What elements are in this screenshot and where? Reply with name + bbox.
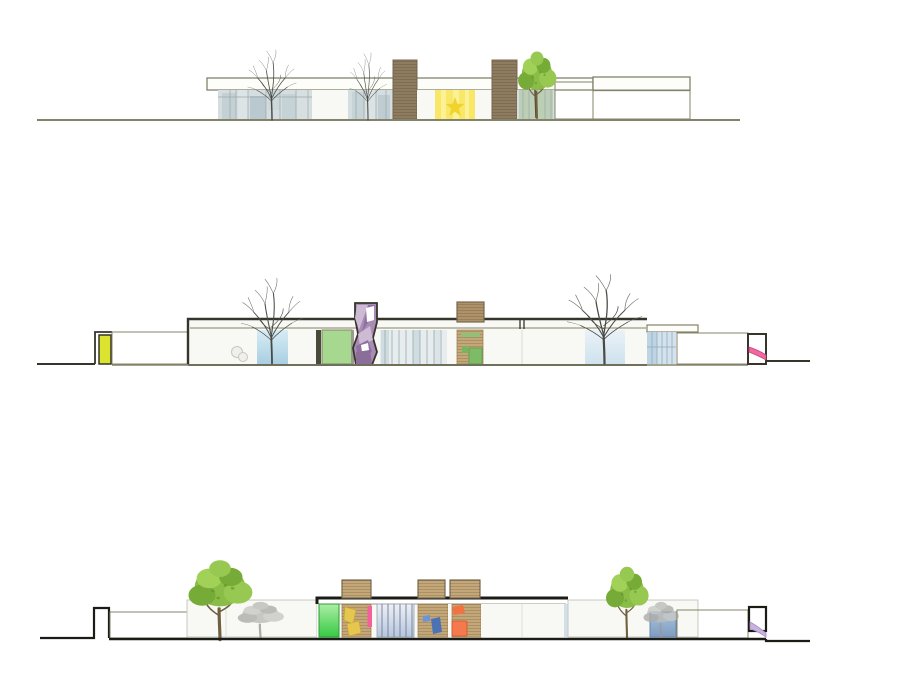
blue-play-block — [423, 615, 430, 622]
wood-roof-volume-2 — [492, 60, 517, 120]
wood-wall-play-2 — [418, 604, 448, 637]
green-door — [469, 348, 482, 364]
slide-opening — [748, 334, 766, 364]
elevation-middle — [37, 274, 810, 365]
green-strip — [461, 333, 480, 337]
wing-glass — [647, 332, 676, 364]
wall-panel — [312, 90, 348, 120]
wall-panel — [417, 90, 435, 120]
wood-wall-play-1 — [342, 604, 372, 637]
roof-slab — [317, 598, 568, 604]
roof-fascia-right — [593, 77, 690, 91]
elevations-drawing — [0, 0, 900, 675]
wood-roof-box — [342, 580, 480, 598]
elevation-sheet — [0, 0, 900, 675]
stone-wall — [677, 333, 748, 364]
green-panel — [319, 604, 339, 637]
wing-fascia — [647, 325, 698, 332]
wood-roof-volume-1 — [393, 60, 417, 120]
wall-section-cut — [316, 330, 321, 364]
glass-end-panel — [564, 604, 568, 637]
green-panel — [322, 330, 352, 364]
building-middle — [188, 302, 647, 365]
slide-opening — [749, 607, 766, 637]
orange-play-box — [452, 621, 467, 636]
glass-curtain-wall-1 — [218, 90, 312, 120]
garden-post — [40, 608, 109, 638]
wood-roof-box — [457, 302, 484, 322]
pink-stripe — [368, 606, 373, 627]
stone-wall — [110, 612, 187, 638]
lime-panel — [99, 335, 111, 364]
elevation-bottom — [40, 560, 810, 641]
wood-panel-wall — [457, 330, 483, 364]
green-hatch — [462, 346, 468, 353]
glass-curtain-wall — [377, 604, 414, 637]
lavender-slide — [750, 622, 766, 637]
yellow-playroom — [435, 90, 475, 120]
ground-line-right — [766, 639, 810, 641]
wood-wall-play-3 — [452, 604, 481, 637]
pink-slide — [749, 347, 766, 360]
building-bottom — [317, 580, 568, 637]
glass-curtain-wall — [380, 330, 447, 364]
elevation-top — [37, 50, 740, 120]
yellow-play-panel — [347, 621, 361, 636]
building-top — [207, 60, 690, 120]
stone-wall — [593, 90, 690, 119]
stone-wall — [112, 332, 188, 364]
glass-curtain-wall-2 — [348, 90, 393, 120]
wall-panel — [475, 90, 492, 120]
